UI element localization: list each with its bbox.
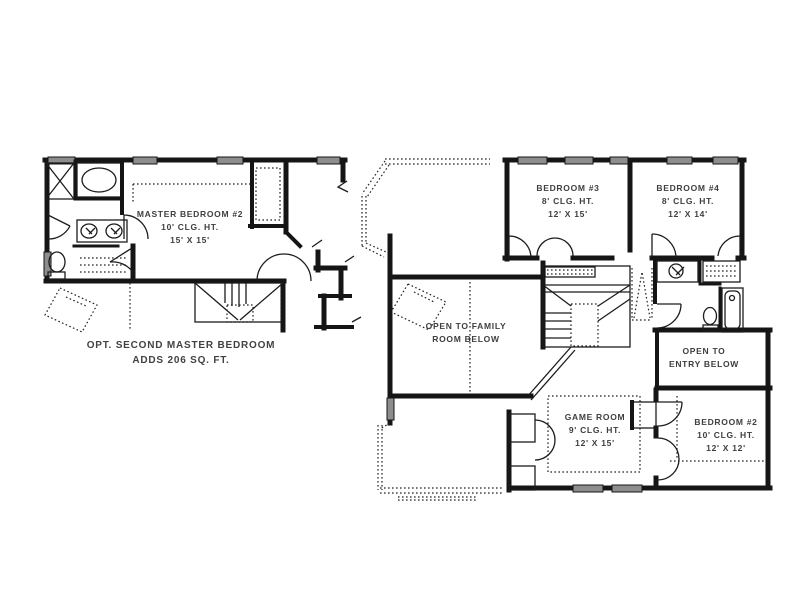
room-ceiling: 9' CLG. HT. <box>565 424 626 437</box>
bedroom4-door <box>652 234 676 258</box>
room-title: BEDROOM #3 <box>536 182 599 195</box>
vanity-sinks <box>77 220 127 242</box>
label-line2: ROOM BELOW <box>426 333 507 346</box>
option-caption: OPT. SECOND MASTER BEDROOM ADDS 206 SQ. … <box>87 339 276 368</box>
room-title: BEDROOM #4 <box>656 182 719 195</box>
room-size: 12' X 15' <box>536 208 599 221</box>
room-label-bedroom-3: BEDROOM #3 8' CLG. HT. 12' X 15' <box>536 182 599 221</box>
room-title: GAME ROOM <box>565 411 626 424</box>
plant-shelf-hatch <box>545 267 595 277</box>
bedroom3-doors <box>509 236 573 258</box>
room-title: BEDROOM #2 <box>694 416 757 429</box>
wall-break-fragments <box>312 240 361 328</box>
floor-plan-page: MASTER BEDROOM #2 10' CLG. HT. 15' X 15'… <box>0 0 800 600</box>
option-boundary-lines <box>130 283 281 330</box>
label-line2: ENTRY BELOW <box>669 358 739 371</box>
stair-railing <box>527 347 575 400</box>
fireplace-outline <box>45 288 97 332</box>
stairs <box>195 281 283 330</box>
room-label-bedroom-2: BEDROOM #2 10' CLG. HT. 12' X 12' <box>694 416 757 455</box>
room-ceiling: 10' CLG. HT. <box>137 221 243 234</box>
room-label-game-room: GAME ROOM 9' CLG. HT. 12' X 15' <box>565 411 626 450</box>
room-ceiling: 8' CLG. HT. <box>656 195 719 208</box>
roofline-dotted-lower <box>378 423 502 500</box>
label-line1: OPEN TO FAMILY <box>426 320 507 333</box>
room-size: 12' X 14' <box>656 208 719 221</box>
room-size: 12' X 15' <box>565 437 626 450</box>
caption-line1: OPT. SECOND MASTER BEDROOM <box>87 339 276 354</box>
double-doors <box>257 254 311 281</box>
closet <box>250 160 300 246</box>
floor-plan-drawing <box>0 0 800 600</box>
toilet <box>48 215 133 281</box>
label-open-to-entry: OPEN TO ENTRY BELOW <box>669 345 739 371</box>
room-label-master-bedroom-2: MASTER BEDROOM #2 10' CLG. HT. 15' X 15' <box>137 208 243 247</box>
room-ceiling: 10' CLG. HT. <box>694 429 757 442</box>
bath-door <box>657 304 681 328</box>
roofline-dotted-upper <box>362 159 490 257</box>
room-label-bedroom-4: BEDROOM #4 8' CLG. HT. 12' X 14' <box>656 182 719 221</box>
room-title: MASTER BEDROOM #2 <box>137 208 243 221</box>
room-size: 15' X 15' <box>137 234 243 247</box>
room-size: 12' X 12' <box>694 442 757 455</box>
bath-vanity-sink <box>657 261 698 282</box>
ceiling-break-line <box>133 184 250 202</box>
stairs <box>527 263 630 400</box>
bathtub <box>77 160 122 213</box>
toilet <box>703 308 718 332</box>
attic-ladder-dashed <box>632 268 652 320</box>
bathtub <box>722 288 743 332</box>
caption-line2: ADDS 206 SQ. FT. <box>87 354 276 369</box>
label-open-to-family-room: OPEN TO FAMILY ROOM BELOW <box>426 320 507 346</box>
shower <box>46 161 75 199</box>
hall-closet <box>632 402 656 428</box>
room-ceiling: 8' CLG. HT. <box>536 195 599 208</box>
label-line1: OPEN TO <box>669 345 739 358</box>
